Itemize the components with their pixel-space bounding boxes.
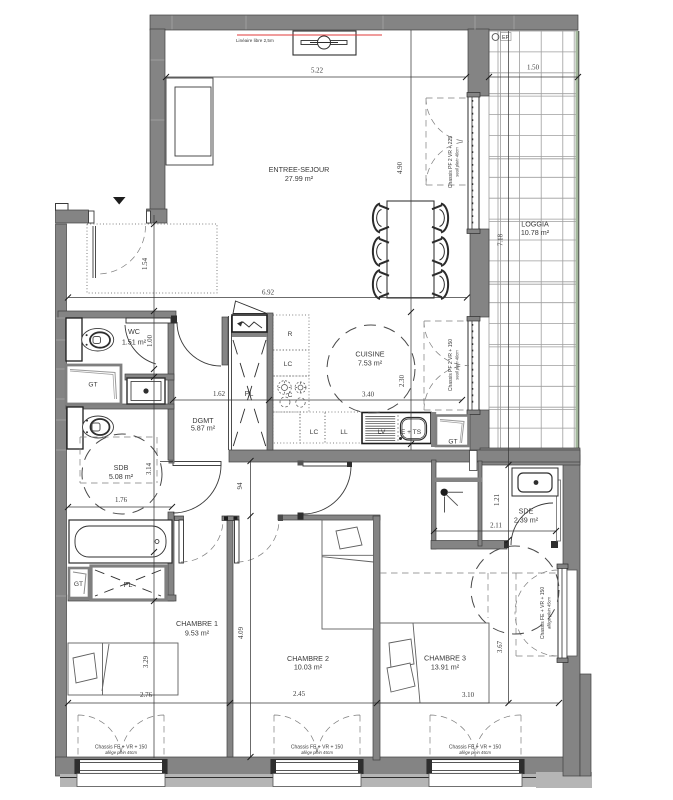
- svg-text:GT: GT: [74, 581, 83, 588]
- svg-text:3.67: 3.67: [497, 640, 504, 653]
- svg-text:allège plein 45cm: allège plein 45cm: [459, 750, 491, 755]
- svg-text:ENTREE-SEJOUR: ENTREE-SEJOUR: [269, 165, 330, 174]
- svg-text:2.30: 2.30: [399, 374, 406, 387]
- svg-text:seuil plein 40cm: seuil plein 40cm: [455, 147, 460, 177]
- svg-text:R: R: [288, 331, 293, 338]
- svg-text:9.53 m²: 9.53 m²: [185, 629, 210, 638]
- svg-text:94: 94: [237, 482, 244, 489]
- svg-text:27.99 m²: 27.99 m²: [285, 174, 314, 183]
- svg-text:2.45: 2.45: [293, 691, 306, 698]
- svg-text:CUISINE: CUISINE: [355, 350, 384, 359]
- svg-text:PL: PL: [124, 580, 133, 589]
- svg-text:LC: LC: [284, 361, 293, 368]
- svg-text:1.76: 1.76: [115, 497, 128, 504]
- svg-text:5.08 m²: 5.08 m²: [109, 472, 134, 481]
- svg-text:1.21: 1.21: [494, 493, 501, 506]
- svg-text:LL: LL: [340, 429, 348, 436]
- svg-text:5.22: 5.22: [311, 68, 324, 75]
- svg-text:1.54: 1.54: [142, 257, 149, 270]
- svg-text:13.91 m²: 13.91 m²: [431, 663, 460, 672]
- svg-text:GT: GT: [448, 439, 457, 446]
- svg-text:1.62: 1.62: [213, 391, 226, 398]
- svg-text:Linéaire libre 2,5m: Linéaire libre 2,5m: [236, 38, 274, 43]
- svg-text:allège plein 45cm: allège plein 45cm: [105, 750, 137, 755]
- svg-text:C: C: [288, 392, 293, 399]
- svg-text:5.87 m²: 5.87 m²: [191, 424, 216, 433]
- svg-text:3.10: 3.10: [462, 692, 475, 699]
- svg-text:GT: GT: [88, 382, 97, 389]
- svg-text:PL: PL: [245, 389, 254, 398]
- svg-text:LC: LC: [310, 429, 319, 436]
- svg-text:6.92: 6.92: [262, 290, 275, 297]
- svg-text:7.53 m²: 7.53 m²: [358, 359, 383, 368]
- svg-text:1.51 m²: 1.51 m²: [122, 338, 147, 347]
- svg-text:WC: WC: [128, 327, 140, 336]
- svg-text:SDE: SDE: [519, 507, 534, 516]
- svg-text:3.29: 3.29: [143, 655, 150, 668]
- svg-text:Chassis FE + VR + 150: Chassis FE + VR + 150: [540, 587, 546, 639]
- svg-text:CHAMBRE 3: CHAMBRE 3: [424, 654, 466, 663]
- svg-text:2.76: 2.76: [140, 692, 153, 699]
- svg-text:Chassis PF 2 VR + 225: Chassis PF 2 VR + 225: [448, 136, 454, 188]
- svg-text:1.00: 1.00: [147, 334, 154, 347]
- svg-text:1.50: 1.50: [527, 65, 540, 72]
- svg-text:seuil plein 40cm: seuil plein 40cm: [455, 350, 460, 380]
- svg-text:SDB: SDB: [114, 463, 129, 472]
- svg-text:3.40: 3.40: [362, 392, 375, 399]
- svg-text:2.11: 2.11: [490, 523, 502, 530]
- svg-text:3.14: 3.14: [146, 462, 153, 475]
- svg-text:CHAMBRE 1: CHAMBRE 1: [176, 619, 218, 628]
- svg-text:2.39 m²: 2.39 m²: [514, 516, 539, 525]
- svg-text:allège plein 45cm: allège plein 45cm: [547, 596, 552, 628]
- svg-text:LV: LV: [378, 429, 386, 436]
- svg-text:4.90: 4.90: [397, 161, 404, 174]
- svg-text:7.18: 7.18: [498, 233, 505, 246]
- svg-text:10.78 m²: 10.78 m²: [521, 228, 550, 237]
- svg-text:Chassis PF 2 VR + 150: Chassis PF 2 VR + 150: [448, 339, 454, 391]
- svg-text:4.09: 4.09: [238, 626, 245, 639]
- svg-text:10.03 m²: 10.03 m²: [294, 663, 323, 672]
- svg-text:allège plein 45cm: allège plein 45cm: [301, 750, 333, 755]
